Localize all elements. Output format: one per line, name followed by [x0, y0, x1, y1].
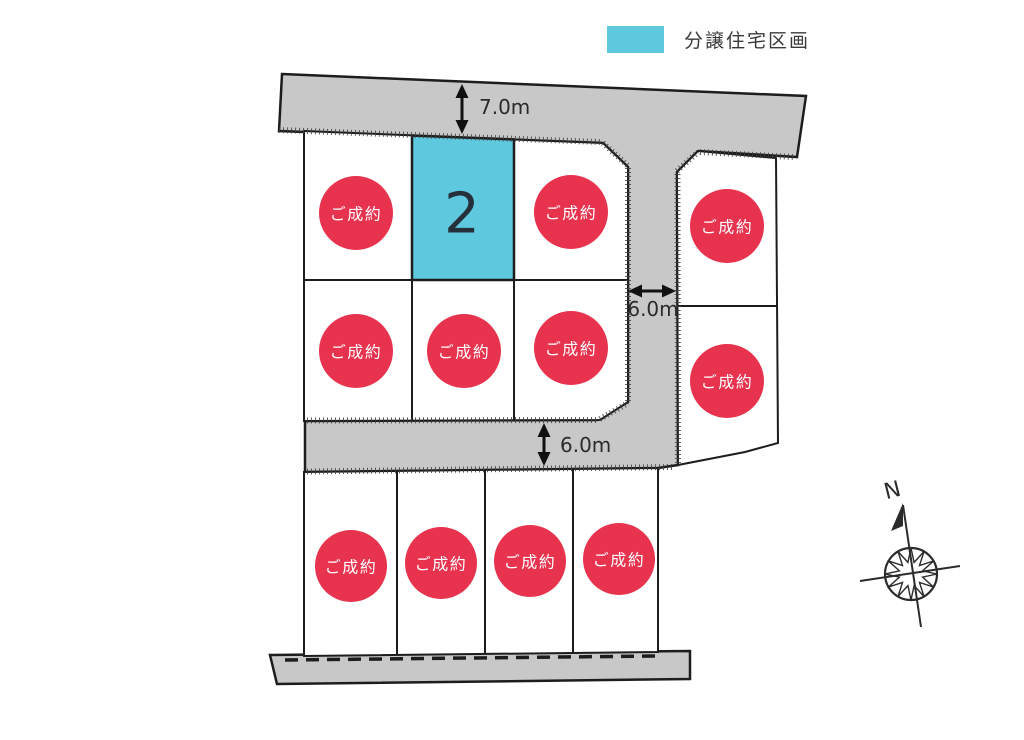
- svg-text:6.0m: 6.0m: [627, 297, 678, 321]
- svg-text:ご成約: ご成約: [415, 555, 468, 574]
- svg-text:ご成約: ご成約: [504, 553, 557, 572]
- svg-text:7.0m: 7.0m: [479, 95, 530, 119]
- svg-text:ご成約: ご成約: [593, 551, 646, 570]
- sold-badge: ご成約: [405, 527, 477, 599]
- sold-badge: ご成約: [319, 314, 393, 388]
- svg-text:ご成約: ご成約: [438, 343, 491, 362]
- dimension-side-road: 6.0m: [627, 285, 678, 322]
- sold-badge: ご成約: [427, 314, 501, 388]
- available-lot-2-number: 2: [444, 182, 480, 247]
- legend-label: 分譲住宅区画: [684, 30, 810, 52]
- legend: 分譲住宅区画: [607, 26, 810, 53]
- svg-text:ご成約: ご成約: [701, 373, 754, 392]
- sold-badge: ご成約: [534, 175, 608, 249]
- legend-swatch: [607, 26, 664, 53]
- sold-badge: ご成約: [319, 176, 393, 250]
- compass-icon: N: [860, 477, 960, 627]
- svg-text:6.0m: 6.0m: [560, 433, 611, 457]
- svg-text:ご成約: ご成約: [545, 340, 598, 359]
- sold-badge: ご成約: [534, 311, 608, 385]
- svg-text:ご成約: ご成約: [545, 204, 598, 223]
- svg-text:ご成約: ご成約: [330, 343, 383, 362]
- lot-map-canvas: 2 ご成約 ご成約 ご成約 ご成約 ご成約 ご成約 ご成約 ご成約: [0, 0, 1024, 740]
- sold-badge: ご成約: [315, 530, 387, 602]
- svg-text:ご成約: ご成約: [701, 218, 754, 237]
- sold-badge: ご成約: [690, 189, 764, 263]
- sold-badge: ご成約: [583, 523, 655, 595]
- sold-badge: ご成約: [494, 525, 566, 597]
- svg-text:ご成約: ご成約: [325, 558, 378, 577]
- svg-text:ご成約: ご成約: [330, 205, 383, 224]
- sold-badge: ご成約: [690, 344, 764, 418]
- lot-map: 2 ご成約 ご成約 ご成約 ご成約 ご成約 ご成約 ご成約 ご成約: [0, 0, 1024, 740]
- compass-north-label: N: [882, 477, 904, 505]
